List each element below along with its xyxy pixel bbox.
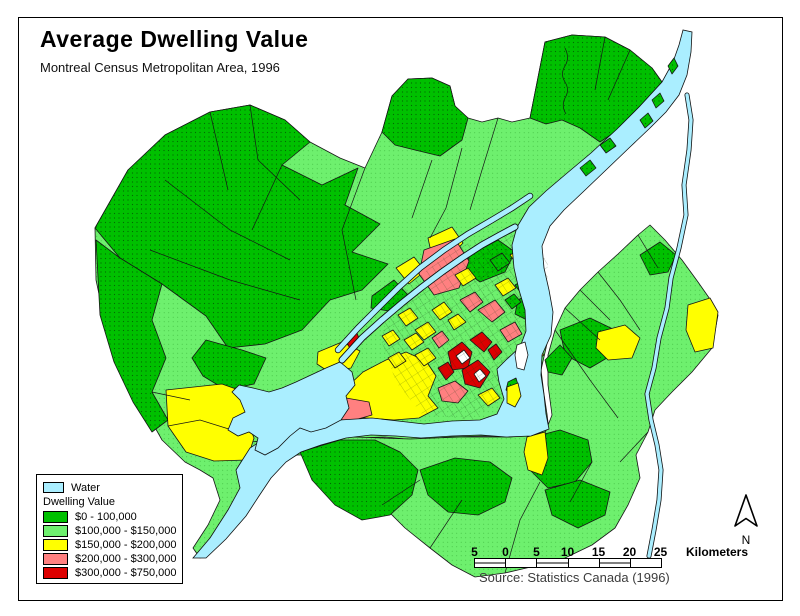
legend-water-row: Water: [43, 481, 182, 494]
map-page: Average Dwelling Value Montreal Census M…: [0, 0, 800, 616]
scale-bar-graphic: [474, 558, 662, 568]
scale-segment: [475, 559, 505, 567]
page-title: Average Dwelling Value: [40, 26, 308, 53]
scale-segment: [505, 559, 536, 567]
legend-class-row: $150,000 - $200,000: [43, 538, 182, 551]
scale-segment: [630, 559, 661, 567]
scale-segment: [599, 559, 630, 567]
legend-class-label: $200,000 - $300,000: [75, 553, 177, 565]
legend-class-row: $100,000 - $150,000: [43, 524, 182, 537]
north-arrow-label: N: [728, 533, 764, 547]
legend-class-row: $0 - 100,000: [43, 510, 182, 523]
scale-tick: 10: [552, 545, 583, 559]
legend-class-label: $100,000 - $150,000: [75, 525, 177, 537]
legend-box: Water Dwelling Value $0 - 100,000 $100,0…: [36, 474, 183, 584]
class1-swatch: [43, 511, 68, 523]
class2-swatch: [43, 525, 68, 537]
legend-class-label: $150,000 - $200,000: [75, 539, 177, 551]
legend-water-label: Water: [71, 482, 100, 494]
legend-class-label: $0 - 100,000: [75, 511, 137, 523]
source-note: Source: Statistics Canada (1996): [479, 570, 670, 585]
class5-swatch: [43, 567, 68, 579]
scale-tick: 5: [459, 545, 490, 559]
legend-class-row: $200,000 - $300,000: [43, 552, 182, 565]
title-block: Average Dwelling Value Montreal Census M…: [40, 26, 308, 75]
scale-tick: 5: [521, 545, 552, 559]
scale-tick: 15: [583, 545, 614, 559]
north-arrow: N: [728, 492, 764, 547]
scale-segment: [568, 559, 599, 567]
north-arrow-icon: [728, 492, 764, 530]
class4-swatch: [43, 553, 68, 565]
scale-tick: 25: [645, 545, 676, 559]
region-north-middle: [382, 78, 468, 156]
scale-tick: 0: [490, 545, 521, 559]
scale-unit-label: Kilometers: [686, 545, 717, 559]
water-swatch: [43, 482, 64, 493]
legend-class-label: $300,000 - $750,000: [75, 567, 177, 579]
page-subtitle: Montreal Census Metropolitan Area, 1996: [40, 60, 308, 75]
region-stlambert-yellow: [524, 432, 548, 475]
class3-swatch: [43, 539, 68, 551]
scale-segment: [536, 559, 567, 567]
legend-group-label: Dwelling Value: [43, 495, 182, 509]
scale-tick: 20: [614, 545, 645, 559]
legend-class-row: $300,000 - $750,000: [43, 566, 182, 579]
